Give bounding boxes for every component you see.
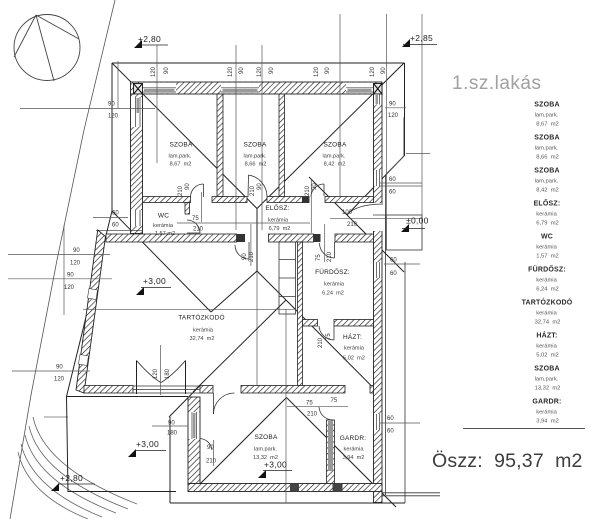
svg-text:kerámia: kerámia bbox=[344, 346, 365, 352]
svg-text:75: 75 bbox=[331, 398, 338, 404]
svg-text:8,42 m2: 8,42 m2 bbox=[536, 188, 559, 194]
svg-text:8,66 m2: 8,66 m2 bbox=[245, 162, 267, 168]
svg-text:120: 120 bbox=[228, 66, 234, 77]
svg-text:90: 90 bbox=[242, 253, 248, 260]
svg-text:32,74 m2: 32,74 m2 bbox=[190, 336, 215, 342]
svg-text:kerámia: kerámia bbox=[536, 278, 557, 284]
svg-text:kerámia: kerámia bbox=[536, 344, 557, 350]
svg-text:90: 90 bbox=[207, 445, 214, 451]
svg-text:Öszz: 95,37 m2: Öszz: 95,37 m2 bbox=[432, 450, 583, 472]
svg-text:SZOBA: SZOBA bbox=[323, 142, 346, 149]
svg-text:6,79 m2: 6,79 m2 bbox=[536, 221, 559, 227]
svg-text:+2,80: +2,80 bbox=[138, 34, 161, 44]
svg-text:8,67 m2: 8,67 m2 bbox=[170, 162, 192, 168]
svg-text:1,57 m2: 1,57 m2 bbox=[155, 231, 175, 237]
svg-text:lam.park.: lam.park. bbox=[535, 179, 559, 185]
svg-text:75: 75 bbox=[316, 254, 322, 261]
svg-text:kerámia: kerámia bbox=[324, 282, 345, 288]
svg-text:90: 90 bbox=[269, 67, 275, 74]
svg-text:60: 60 bbox=[112, 223, 119, 229]
svg-text:+3,00: +3,00 bbox=[143, 276, 166, 286]
svg-text:90: 90 bbox=[389, 102, 396, 108]
svg-text:1.sz.lakás: 1.sz.lakás bbox=[452, 73, 541, 94]
svg-text:210: 210 bbox=[206, 459, 217, 465]
svg-text:60: 60 bbox=[389, 177, 396, 183]
svg-text:13,32 m2: 13,32 m2 bbox=[253, 455, 278, 461]
svg-text:210: 210 bbox=[193, 227, 204, 233]
svg-text:SZOBA: SZOBA bbox=[534, 366, 560, 373]
svg-text:210: 210 bbox=[327, 251, 333, 262]
svg-text:1,57 m2: 1,57 m2 bbox=[536, 254, 559, 260]
svg-text:120: 120 bbox=[257, 66, 263, 77]
svg-text:90: 90 bbox=[257, 183, 263, 190]
svg-text:90: 90 bbox=[108, 102, 115, 108]
svg-text:lam.park.: lam.park. bbox=[535, 113, 559, 119]
svg-text:90: 90 bbox=[381, 67, 387, 74]
svg-text:kerámia: kerámia bbox=[536, 212, 557, 218]
svg-text:SZOBA: SZOBA bbox=[243, 142, 266, 149]
svg-text:6,79 m2: 6,79 m2 bbox=[269, 226, 291, 232]
svg-text:180: 180 bbox=[165, 368, 171, 379]
svg-text:120: 120 bbox=[151, 66, 157, 77]
svg-text:120: 120 bbox=[108, 114, 119, 120]
svg-text:120: 120 bbox=[54, 377, 65, 383]
svg-text:+3,00: +3,00 bbox=[264, 460, 287, 470]
svg-text:60: 60 bbox=[389, 190, 396, 196]
svg-text:6,24 m2: 6,24 m2 bbox=[322, 291, 344, 297]
svg-text:60: 60 bbox=[390, 258, 397, 264]
svg-text:HÁZT:: HÁZT: bbox=[343, 332, 362, 341]
svg-text:210: 210 bbox=[250, 185, 256, 196]
svg-text:lam.park.: lam.park. bbox=[322, 154, 345, 160]
svg-text:GARDR:: GARDR: bbox=[340, 435, 366, 442]
svg-text:210: 210 bbox=[347, 222, 358, 228]
svg-text:lam.park.: lam.park. bbox=[535, 377, 559, 383]
svg-text:HÁZT:: HÁZT: bbox=[536, 331, 557, 340]
svg-text:90: 90 bbox=[73, 248, 80, 254]
svg-text:120: 120 bbox=[388, 113, 399, 119]
svg-text:kerámia: kerámia bbox=[193, 328, 214, 334]
svg-text:100: 100 bbox=[342, 210, 353, 216]
svg-text:kerámia: kerámia bbox=[536, 311, 557, 317]
svg-text:8,66 m2: 8,66 m2 bbox=[536, 155, 559, 161]
svg-text:210: 210 bbox=[249, 251, 255, 262]
svg-text:+2,80: +2,80 bbox=[60, 473, 83, 483]
svg-text:90: 90 bbox=[168, 421, 175, 427]
svg-text:3,94 m2: 3,94 m2 bbox=[343, 455, 365, 461]
svg-text:60: 60 bbox=[387, 429, 394, 435]
svg-text:120: 120 bbox=[70, 261, 81, 267]
svg-text:210: 210 bbox=[178, 185, 184, 196]
svg-text:32,74 m2: 32,74 m2 bbox=[535, 320, 561, 326]
svg-text:+2,85: +2,85 bbox=[410, 33, 433, 43]
svg-text:60: 60 bbox=[390, 271, 397, 277]
svg-text:FÜRDŐSZ:: FÜRDŐSZ: bbox=[315, 267, 350, 276]
svg-text:90: 90 bbox=[239, 67, 245, 74]
svg-text:WC: WC bbox=[541, 234, 553, 241]
svg-text:kerámia: kerámia bbox=[268, 218, 289, 224]
svg-text:lam.park.: lam.park. bbox=[254, 447, 277, 453]
svg-text:SZOBA: SZOBA bbox=[534, 102, 560, 109]
svg-text:kerámia: kerámia bbox=[536, 245, 557, 251]
svg-text:±0,00: ±0,00 bbox=[406, 216, 429, 226]
svg-text:GARDR:: GARDR: bbox=[532, 399, 561, 406]
svg-text:120: 120 bbox=[153, 368, 159, 379]
svg-text:75: 75 bbox=[306, 401, 313, 407]
svg-text:SZOBA: SZOBA bbox=[534, 135, 560, 142]
svg-text:210: 210 bbox=[305, 185, 311, 196]
svg-text:lam.park.: lam.park. bbox=[535, 146, 559, 152]
svg-text:WC: WC bbox=[158, 213, 169, 220]
svg-text:5,02 m2: 5,02 m2 bbox=[343, 356, 365, 362]
svg-text:lam.park.: lam.park. bbox=[168, 154, 191, 160]
svg-text:120: 120 bbox=[314, 66, 320, 77]
svg-text:SZOBA: SZOBA bbox=[534, 168, 560, 175]
svg-text:SZOBA: SZOBA bbox=[254, 434, 277, 441]
svg-text:SZOBA: SZOBA bbox=[169, 142, 192, 149]
svg-text:TARTÓZKODÓ: TARTÓZKODÓ bbox=[178, 313, 225, 322]
svg-text:kerámia: kerámia bbox=[153, 223, 174, 229]
svg-text:kerámia: kerámia bbox=[344, 447, 365, 453]
svg-text:8,67 m2: 8,67 m2 bbox=[536, 122, 559, 128]
svg-text:3,94 m2: 3,94 m2 bbox=[536, 419, 559, 425]
svg-text:ELŐSZ:: ELŐSZ: bbox=[534, 199, 561, 208]
svg-text:FÜRDŐSZ:: FÜRDŐSZ: bbox=[528, 265, 566, 274]
svg-text:180: 180 bbox=[167, 431, 178, 437]
svg-text:lam.park.: lam.park. bbox=[243, 154, 266, 160]
svg-text:60: 60 bbox=[387, 416, 394, 422]
svg-text:8,42 m2: 8,42 m2 bbox=[324, 162, 346, 168]
svg-text:60: 60 bbox=[112, 211, 119, 217]
svg-text:TARTÓZKODÓ: TARTÓZKODÓ bbox=[522, 298, 573, 307]
svg-text:90: 90 bbox=[67, 273, 74, 279]
svg-text:75: 75 bbox=[326, 333, 332, 340]
svg-text:120: 120 bbox=[370, 66, 376, 77]
svg-text:13,32 m2: 13,32 m2 bbox=[535, 386, 561, 392]
svg-text:210: 210 bbox=[307, 412, 318, 418]
svg-text:210: 210 bbox=[318, 337, 324, 348]
svg-text:90: 90 bbox=[185, 183, 191, 190]
svg-text:90: 90 bbox=[312, 183, 318, 190]
svg-text:6,24 m2: 6,24 m2 bbox=[536, 287, 559, 293]
svg-text:90: 90 bbox=[164, 67, 170, 74]
svg-text:5,02 m2: 5,02 m2 bbox=[536, 353, 559, 359]
svg-text:+3,00: +3,00 bbox=[136, 439, 159, 449]
svg-text:ELŐSZ:: ELŐSZ: bbox=[265, 203, 289, 212]
svg-text:90: 90 bbox=[325, 67, 331, 74]
svg-text:75: 75 bbox=[192, 216, 199, 222]
svg-text:120: 120 bbox=[64, 285, 75, 291]
svg-text:kerámia: kerámia bbox=[536, 410, 557, 416]
svg-text:90: 90 bbox=[56, 365, 63, 371]
